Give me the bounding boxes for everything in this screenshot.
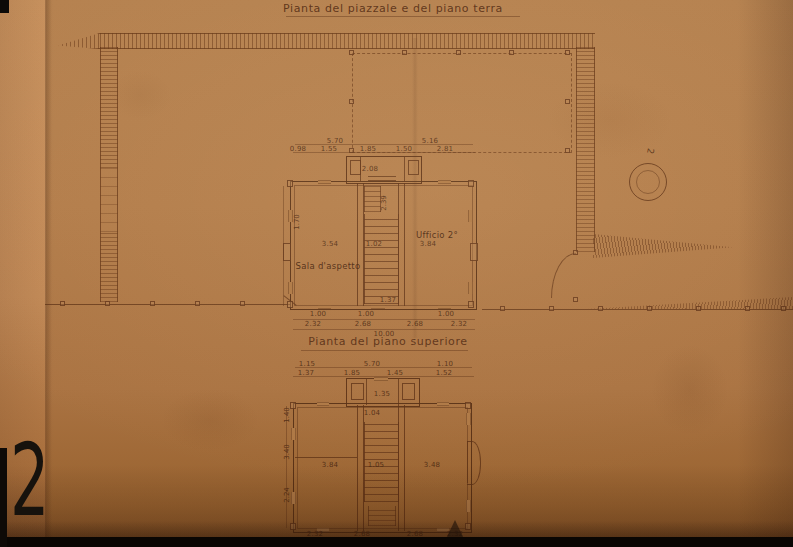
fence-post [781,306,786,311]
dim-label: 2.24 [284,487,291,503]
corner-pilaster [465,402,471,409]
upper-hall-wall-right [398,405,405,531]
perimeter-wall-left-gate [100,168,118,232]
dim-label: 1.85 [360,146,376,153]
title-upper-underline [301,350,468,351]
title-ground-underline [286,16,520,17]
photo-bottom-edge [0,537,793,547]
window-gap [466,500,471,512]
dim-label: 3.48 [424,462,440,469]
dim-label: 1.05 [368,462,384,469]
dim-label: 2.68 [355,321,371,328]
upper-room-divider [295,457,357,458]
dim-label: 2.08 [362,166,378,173]
enclosure-post [402,50,407,55]
dim-label: 1.15 [299,361,315,368]
dim-label: 1.50 [396,146,412,153]
title-ground-floor: Pianta del piazzale e del piano terra [283,2,503,15]
dim-label: 1.37 [298,370,314,377]
fence-post [696,306,701,311]
staircase [364,214,399,304]
fence-line-left [45,304,291,305]
entrance-step [368,176,396,177]
window-gap [466,413,471,425]
side-porch-right [470,243,478,261]
dim-label: 3.40 [284,444,291,460]
perimeter-wall-right [576,47,595,252]
dim-label: 1.37 [380,297,396,304]
photo-corner-mark [0,0,9,13]
dimension-line [283,186,284,306]
perimeter-wall-left-upper [100,47,118,168]
well-inner-circle [636,170,660,194]
fence-post [105,301,110,306]
enclosure-post [349,99,354,104]
dim-label: 2.39 [381,195,388,211]
perimeter-wall-left-lower [100,232,118,302]
dim-label: 1.40 [284,407,291,423]
window-gap [291,492,296,504]
dim-label: 1.10 [437,361,453,368]
hall-wall-left [357,183,364,306]
gate-post [573,297,578,302]
entrance-step [368,180,396,181]
window-gap [288,282,293,294]
corner-pilaster [468,301,474,308]
title-upper-floor: Pianta del piano superiore [308,335,467,348]
door-gap [438,305,451,309]
dim-label: 1.00 [310,311,326,318]
dim-label: 2.81 [437,146,453,153]
upper-vestibule-divider [366,379,367,405]
paper-bottom-shadow [0,521,793,538]
photo-left-edge [0,448,7,547]
dim-label: 1.00 [438,311,454,318]
corner-pilaster [287,180,293,187]
dim-label: 5.70 [364,361,380,368]
window-gap [468,282,473,294]
dim-label: 2.32 [305,321,321,328]
vestibule-divider [404,157,405,182]
side-porch-left [283,243,291,261]
enclosure-post [565,50,570,55]
dim-label: 1.70 [294,214,301,230]
fence-post [745,306,750,311]
fence-post [500,306,505,311]
dim-label: 5.70 [327,138,343,145]
dim-label: 3.54 [322,241,338,248]
courtyard-dashed-enclosure [352,53,572,153]
corner-pilaster [287,301,293,308]
window-gap [437,402,449,406]
upper-fixture [402,383,415,400]
corner-pilaster [290,402,296,409]
staircase-upper-flight [364,186,381,212]
dim-label: 2.32 [451,321,467,328]
photo-of-architectural-drawing: Pianta del piazzale e del piano terra 2 [0,0,793,547]
dim-label: 1.85 [344,370,360,377]
upper-hall-wall-left [357,405,364,531]
dim-label: 3.84 [420,241,436,248]
fence-post [647,306,652,311]
enclosure-post [456,50,461,55]
fence-post [240,301,245,306]
door-gap [318,305,331,309]
dim-label: 1.35 [374,391,390,398]
fence-post [60,301,65,306]
dim-label: 2.68 [407,321,423,328]
dim-label: 3.84 [322,462,338,469]
vestibule-fixture [408,160,419,175]
dim-label: 5.16 [422,138,438,145]
fence-post [150,301,155,306]
gate-post [573,250,578,255]
dim-label: 1.00 [358,311,374,318]
dim-label: 1.04 [364,410,380,417]
room-label-waiting: Sala d'aspetto [296,262,361,271]
fence-post [195,301,200,306]
hall-wall-right [398,183,405,306]
upper-fixture [351,383,364,400]
window-gap [317,402,329,406]
dim-label: 1.45 [387,370,403,377]
dim-label: 1.02 [366,241,382,248]
balcony-wall-line [467,441,468,483]
dimension-line [286,406,287,528]
vestibule-fixture [350,160,361,175]
upper-vestibule-divider [398,379,399,405]
enclosure-post [565,99,570,104]
fence-post [598,306,603,311]
dim-label: 0.98 [290,146,306,153]
door-gap [371,305,385,309]
window-gap [468,210,473,222]
fence-post [549,306,554,311]
window-gap [318,180,331,184]
window-gap [438,180,451,184]
corner-pilaster [468,180,474,187]
dim-label: 1.52 [436,370,452,377]
door-gap [374,377,388,381]
perimeter-wall-top [100,33,595,49]
dim-label: 1.55 [321,146,337,153]
enclosure-post [509,50,514,55]
enclosure-post [565,148,570,153]
enclosure-post [349,50,354,55]
window-gap [291,428,296,440]
room-label-office: Ufficio 2° [416,231,458,240]
plate-number: 2 [10,442,49,520]
